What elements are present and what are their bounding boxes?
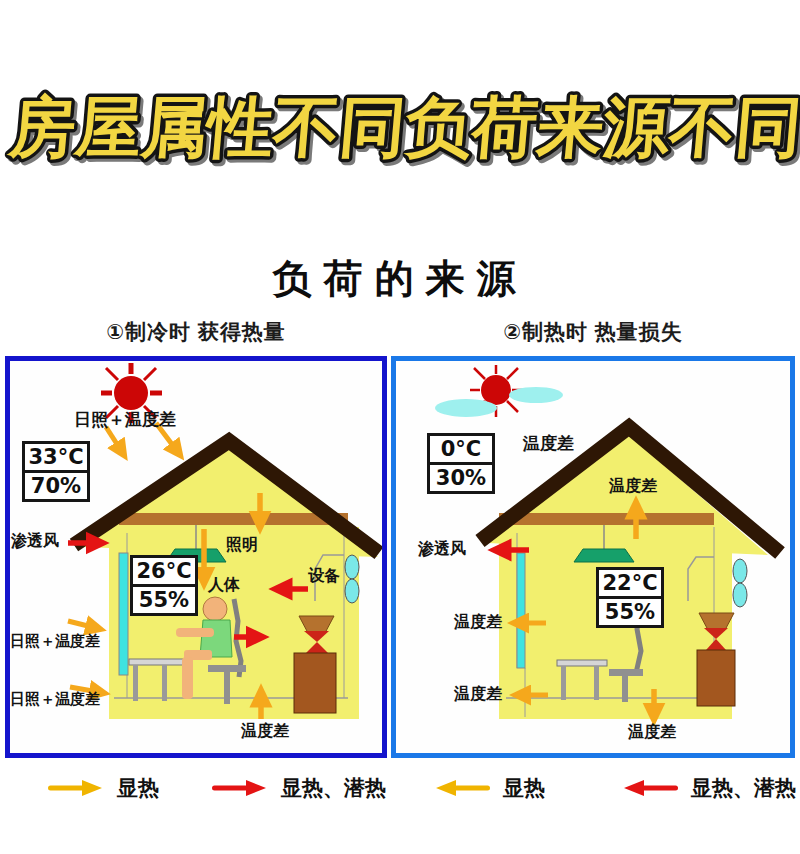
- yellow-right-arrow-icon: [48, 779, 104, 797]
- legend: 显热 显热、潜热 显热 显热、潜热: [0, 772, 800, 810]
- legend-item-sensible-right: 显热: [48, 772, 159, 804]
- indoor-conditions-box: 22°C 55%: [596, 567, 664, 628]
- ceiling-slab: [499, 513, 714, 525]
- heating-panel: 温度差 温度差 渗透风 温度差 温度差 温度差 0°C 30% 22°C 55%: [391, 356, 795, 758]
- chair-seat: [208, 665, 246, 672]
- yellow-left-arrow-icon: [434, 779, 490, 797]
- human-body-label: 人体: [208, 577, 240, 594]
- indoor-temp: 22°C: [599, 570, 661, 599]
- cooling-panel-header: ①制冷时 获得热量: [5, 318, 387, 346]
- person-head: [203, 597, 227, 621]
- section-subtitle: 负荷的来源: [0, 252, 800, 306]
- red-left-arrow-icon: [622, 779, 678, 797]
- person-leg: [182, 657, 193, 699]
- legend-item-latent-left: 显热、潜热: [622, 772, 796, 804]
- window: [119, 553, 128, 675]
- chair-leg: [622, 676, 628, 702]
- person-arm: [176, 628, 214, 637]
- temp-diff-floor-label: 温度差: [628, 724, 676, 741]
- indoor-humidity: 55%: [133, 587, 195, 613]
- page-title-art: 房屋属性不同负荷来源不同 房屋属性不同负荷来源不同: [0, 56, 800, 178]
- indoor-humidity: 55%: [599, 599, 661, 625]
- chair-seat: [609, 669, 643, 676]
- outdoor-temp: 33°C: [25, 444, 87, 473]
- wall-gain-upper-label: 日照＋温度差: [10, 633, 100, 649]
- temp-diff-lower-label: 温度差: [454, 686, 502, 703]
- indoor-conditions-box: 26°C 55%: [130, 555, 198, 616]
- temp-diff-top-label: 温度差: [523, 435, 574, 453]
- legend-label: 显热、潜热: [281, 774, 386, 802]
- cooling-panel: 日照＋温度差 渗透风 照明 人体 设备 日照＋温度差 日照＋温度差 温度差 33…: [5, 356, 387, 758]
- solar-roof-arrow-left: [106, 427, 124, 455]
- outdoor-humidity: 70%: [25, 473, 87, 499]
- page-title: 房屋属性不同负荷来源不同: [6, 90, 800, 164]
- equipment-label: 设备: [308, 568, 340, 585]
- infographic-page: { "title": "房屋属性不同负荷来源不同", "subtitle": "…: [0, 0, 800, 854]
- outdoor-humidity: 30%: [430, 465, 492, 491]
- temp-diff-attic-label: 温度差: [609, 478, 657, 495]
- infiltration-label: 渗透风: [11, 533, 59, 550]
- outdoor-temp: 0°C: [430, 436, 492, 465]
- legend-item-latent-right: 显热、潜热: [212, 772, 386, 804]
- temp-diff-mid-label: 温度差: [454, 614, 502, 631]
- infiltration-label: 渗透风: [418, 541, 466, 558]
- chair-leg: [224, 672, 230, 704]
- heating-panel-header: ②制热时 热量损失: [391, 318, 795, 346]
- ceiling-slab: [119, 513, 348, 525]
- legend-label: 显热: [117, 774, 159, 802]
- window: [517, 553, 525, 668]
- wall-gain-arrow-upper: [68, 621, 100, 629]
- outdoor-conditions-box: 33°C 70%: [22, 441, 90, 502]
- red-right-arrow-icon: [212, 779, 268, 797]
- legend-item-sensible-left: 显热: [434, 772, 545, 804]
- floor-gain-label: 温度差: [241, 723, 289, 740]
- wall-gain-lower-label: 日照＋温度差: [10, 691, 100, 707]
- lighting-label: 照明: [226, 537, 258, 554]
- legend-label: 显热: [503, 774, 545, 802]
- page-title-banner: 房屋属性不同负荷来源不同 房屋属性不同负荷来源不同: [0, 56, 800, 178]
- solar-gain-label: 日照＋温度差: [74, 411, 176, 429]
- legend-label: 显热、潜热: [691, 774, 796, 802]
- indoor-temp: 26°C: [133, 558, 195, 587]
- outdoor-conditions-box: 0°C 30%: [427, 433, 495, 494]
